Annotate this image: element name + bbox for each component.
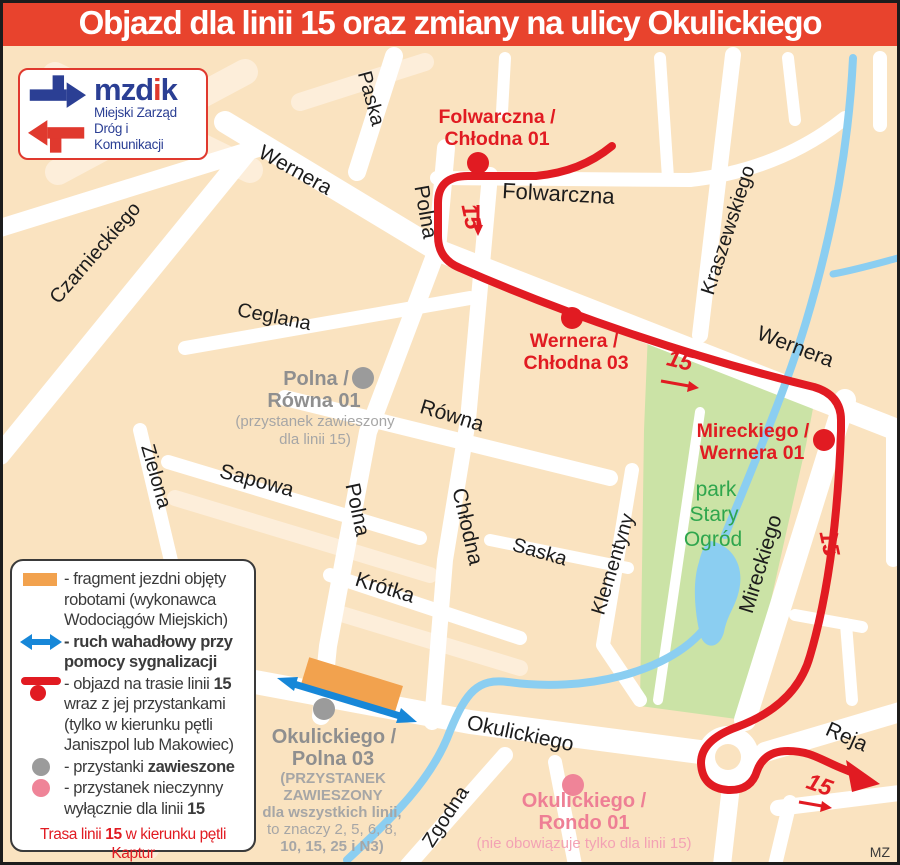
legend-text-line: - przystanek nieczynny xyxy=(64,778,223,799)
stop-name-line1: Mireckiego / xyxy=(697,420,810,442)
legend-item-closed-stop: - przystanek nieczynny wyłącznie dla lin… xyxy=(18,778,248,819)
park-label-line3: Ogród xyxy=(684,528,742,551)
legend-text-segment: - objazd na trasie linii xyxy=(64,675,214,693)
logo-subtitle-line1: Miejski Zarząd xyxy=(94,105,198,121)
logo-word-blue2: k xyxy=(161,72,177,107)
legend-text-line: pomocy sygnalizacji xyxy=(64,652,233,673)
infographic-frame: 15 15 15 15 Paska Wernera xyxy=(0,0,900,865)
note-route-number: 15 xyxy=(105,826,121,843)
stop-note-line2: dla linii 15) xyxy=(279,431,351,448)
stop-note-line1: (nie obowiązuje tylko dla linii 15) xyxy=(476,835,691,852)
stop-name-line2: Równa 01 xyxy=(267,390,360,412)
legend-box: - fragment jezdni objęty robotami (wykon… xyxy=(10,559,256,852)
stop-dot-okulickiego-polna-03-suspended xyxy=(313,698,335,720)
stop-name-line1: Folwarczna / xyxy=(438,106,556,128)
stop-dot-polna-rowna-01-suspended xyxy=(352,367,374,389)
route-with-stop-icon xyxy=(19,674,63,704)
stop-note-line1: (przystanek zawieszony xyxy=(235,413,395,430)
logo-wordmark: mzdik xyxy=(94,75,198,105)
legend-text-line: (tylko w kierunku pętli xyxy=(64,715,234,736)
stop-note-line3: dla wszystkich linii, xyxy=(262,804,401,821)
logo-word-blue1: mzd xyxy=(94,72,153,107)
closed-stop-dot-icon xyxy=(30,778,52,798)
stop-name-line2: Chłodna 01 xyxy=(444,128,549,150)
note-segment: w kierunku pętli Kaptur xyxy=(111,826,226,862)
title-bar: Objazd dla linii 15 oraz zmiany na ulicy… xyxy=(0,0,900,46)
stop-name-line1: Polna / xyxy=(283,368,349,390)
stop-name-line2: Polna 03 xyxy=(292,748,374,770)
note-segment: Trasa linii xyxy=(40,826,105,843)
stop-note-line1: (PRZYSTANEK xyxy=(280,770,386,787)
stop-dot-wernera-chlodna-03 xyxy=(561,307,583,329)
mzdik-arrows-icon xyxy=(28,75,86,153)
stop-name-line2: Wernera 01 xyxy=(700,442,805,464)
stop-note-line5: 10, 15, 25 i N3) xyxy=(280,838,383,855)
roadworks-swatch-icon xyxy=(21,569,61,589)
logo-subtitle-line2: Dróg i Komunikacji xyxy=(94,121,198,153)
legend-note-kaptur: Trasa linii 15 w kierunku pętli Kaptur (… xyxy=(18,825,248,865)
legend-route-number: 15 xyxy=(187,800,205,818)
legend-text-line: - przystanki zawieszone xyxy=(64,757,235,778)
page-title: Objazd dla linii 15 oraz zmiany na ulicy… xyxy=(79,4,822,42)
legend-text-line: - objazd na trasie linii 15 xyxy=(64,674,234,695)
stop-name-line1: Okulickiego / xyxy=(522,790,647,812)
stop-note-line2: ZAWIESZONY xyxy=(283,787,382,804)
stop-name-line2: Rondo 01 xyxy=(538,812,629,834)
author-credit: MZ xyxy=(870,844,890,860)
stop-name-line1: Okulickiego / xyxy=(272,726,397,748)
stop-name-line1: Wernera / xyxy=(530,330,619,352)
stop-label-folwarczna-chlodna-01: Folwarczna / Chłodna 01 xyxy=(438,106,556,150)
legend-text-line: Wodociągów Miejskich) xyxy=(64,610,228,631)
legend-item-suspended-stops: - przystanki zawieszone xyxy=(18,757,248,778)
stop-note-line4: to znaczy 2, 5, 6, 8, xyxy=(267,821,397,838)
legend-item-shuttle-traffic: - ruch wahadłowy przy pomocy sygnalizacj… xyxy=(18,632,248,673)
legend-route-number: 15 xyxy=(214,675,232,693)
stop-label-mireckiego-wernera-01: Mireckiego / Wernera 01 xyxy=(697,420,810,464)
stop-label-wernera-chlodna-03: Wernera / Chłodna 03 xyxy=(523,330,628,374)
legend-item-roadworks: - fragment jezdni objęty robotami (wykon… xyxy=(18,569,248,631)
stop-dot-mireckiego-wernera-01 xyxy=(813,429,835,451)
legend-text-bold: zawieszone xyxy=(148,758,235,776)
legend-note-line1: Trasa linii 15 w kierunku pętli Kaptur xyxy=(18,825,248,863)
legend-text-segment: wyłącznie dla linii xyxy=(64,800,187,818)
legend-text-segment: - przystanki xyxy=(64,758,148,776)
logo-word-red-i: i xyxy=(153,72,161,107)
legend-text-line: wraz z jej przystankami xyxy=(64,694,234,715)
legend-text-line: - fragment jezdni objęty xyxy=(64,569,228,590)
legend-text-line: - ruch wahadłowy przy xyxy=(64,632,233,653)
park-label-line2: Stary xyxy=(689,503,739,526)
stop-dot-folwarczna-chlodna-01 xyxy=(467,152,489,174)
park-label-line1: park xyxy=(696,478,737,501)
legend-text-line: Janiszpol lub Makowiec) xyxy=(64,735,234,756)
stop-name-line2: Chłodna 03 xyxy=(523,352,628,374)
suspended-stop-dot-icon xyxy=(30,757,52,777)
legend-text-line: wyłącznie dla linii 15 xyxy=(64,799,223,820)
legend-text-line: robotami (wykonawca xyxy=(64,590,228,611)
stop-label-okulickiego-polna-03: Okulickiego / Polna 03 (PRZYSTANEK ZAWIE… xyxy=(262,726,401,855)
mzdik-logo: mzdik Miejski Zarząd Dróg i Komunikacji xyxy=(18,68,208,160)
legend-item-detour-route: - objazd na trasie linii 15 wraz z jej p… xyxy=(18,674,248,756)
double-arrow-icon xyxy=(20,632,62,652)
